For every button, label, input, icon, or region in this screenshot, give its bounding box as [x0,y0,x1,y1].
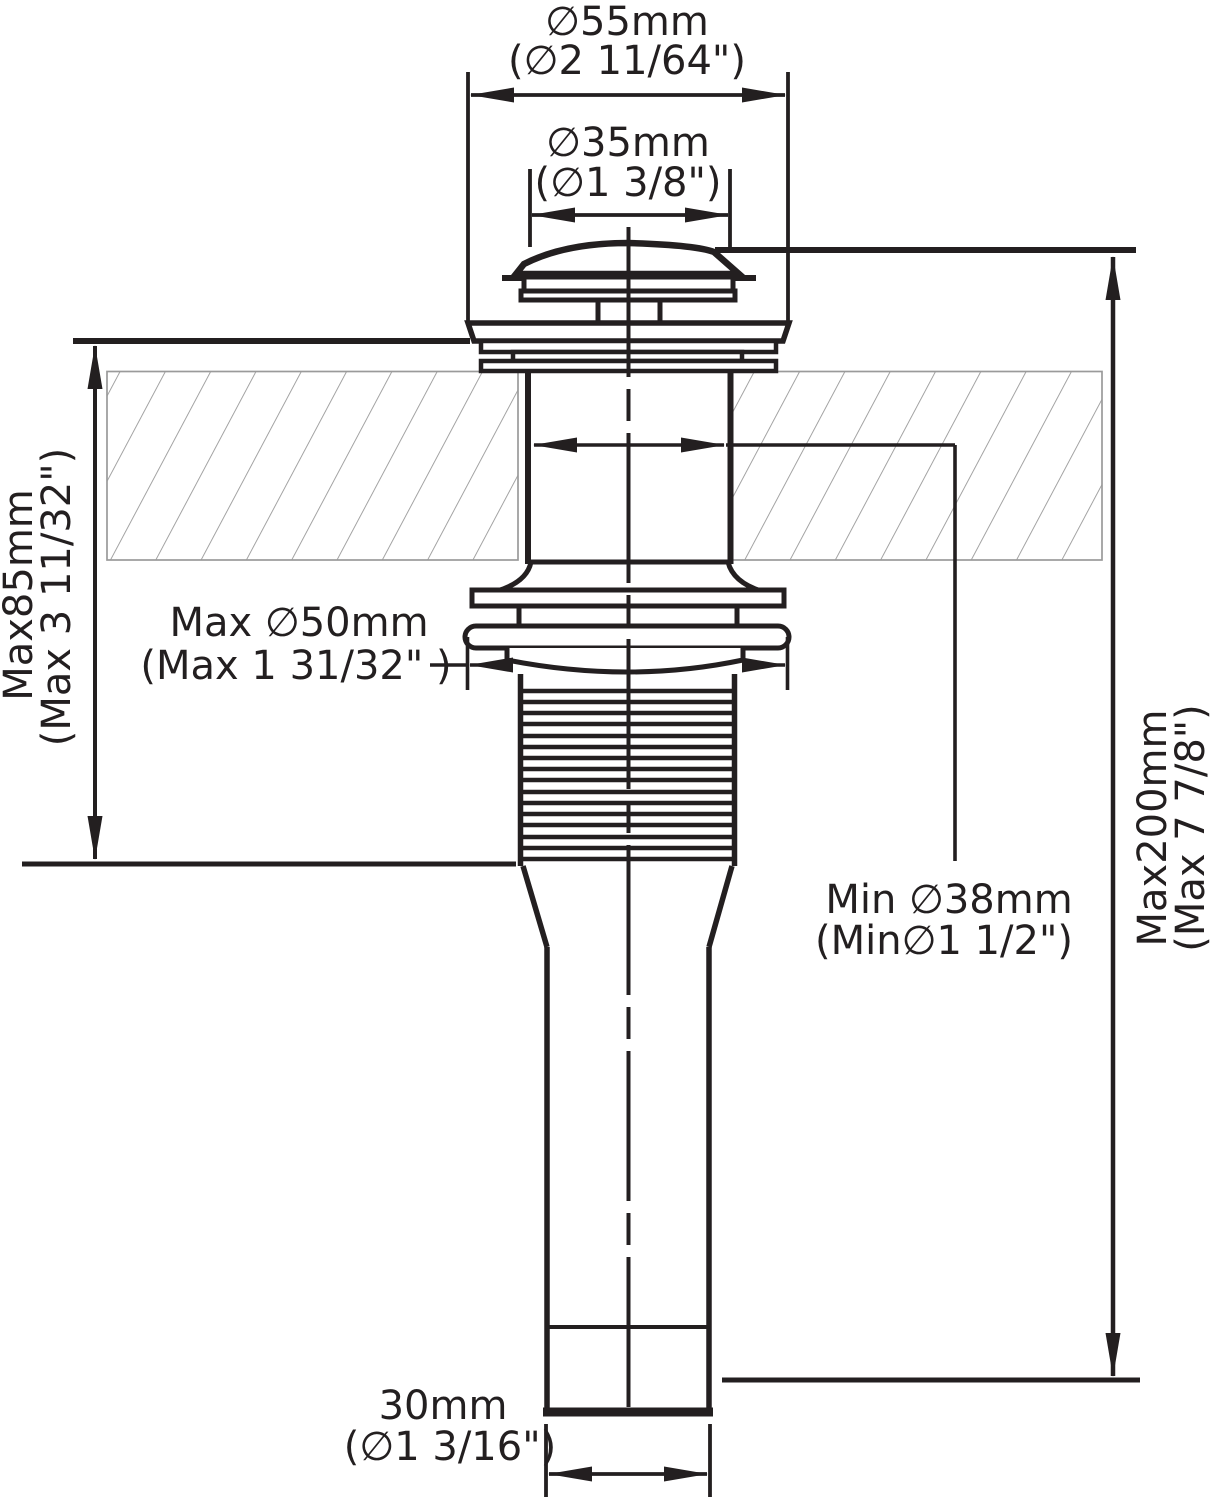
taper-right [709,866,732,947]
label-30-metric: 30mm [379,1383,508,1429]
label-35-imperial: (∅1 3/8") [535,160,722,206]
label-50-metric: Max ∅50mm [169,600,428,646]
locknut-skirt [507,648,743,672]
taper-left [523,866,547,947]
countertop-cross-section [107,372,1102,561]
label-200-imperial: (Max 7 7/8") [1168,704,1214,952]
label-38-imperial: (Min∅1 1/2") [815,918,1073,964]
technical-drawing-page: ∅55mm (∅2 11/64") ∅35mm (∅1 3/8") Max85m… [0,0,1216,1500]
countertop-right-block [733,372,1103,561]
label-55-imperial: (∅2 11/64") [508,38,746,84]
label-30-imperial: (∅1 3/16") [344,1424,556,1470]
dim-30mm [546,1424,710,1497]
label-85-imperial: (Max 3 11/32") [34,448,80,746]
label-50-imperial: (Max 1 31/32" ) [140,643,451,689]
countertop-left-block [107,372,518,561]
drain-dimension-diagram: ∅55mm (∅2 11/64") ∅35mm (∅1 3/8") Max85m… [0,0,1216,1500]
label-38-metric: Min ∅38mm [825,877,1072,923]
